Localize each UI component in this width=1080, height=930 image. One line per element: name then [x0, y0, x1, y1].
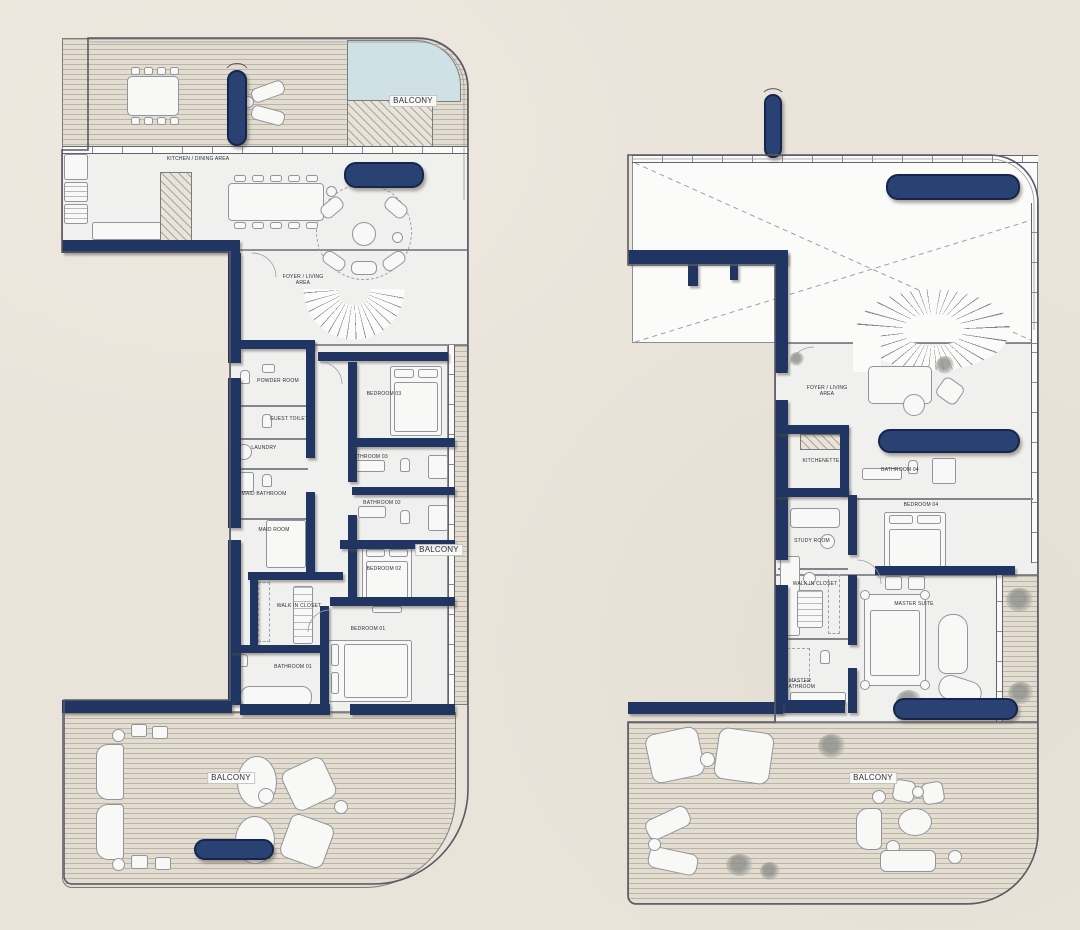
duvet — [870, 610, 920, 676]
window-wall-right — [448, 345, 455, 705]
dining-table — [228, 183, 324, 221]
entry-planter-upper — [764, 94, 782, 158]
wall — [848, 668, 857, 713]
chair — [252, 175, 264, 182]
toilet — [400, 458, 410, 472]
label-maid-room: MAID ROOM — [258, 527, 289, 533]
chair — [920, 780, 945, 805]
bench — [372, 606, 402, 613]
wall — [306, 340, 315, 458]
chair — [306, 175, 318, 182]
potted-plant — [936, 356, 954, 374]
label-kitchen-dining: KITCHEN / DINING AREA — [167, 156, 230, 162]
kitchen-island — [160, 172, 192, 242]
chair — [131, 67, 140, 75]
wall — [775, 425, 847, 434]
partition — [778, 638, 848, 640]
living-planter — [344, 162, 424, 188]
wall — [240, 704, 330, 715]
toilet — [400, 510, 410, 524]
partition — [232, 438, 308, 440]
label-foyer-living: FOYER / LIVING AREA — [282, 274, 324, 287]
wall — [228, 540, 241, 705]
foyer-planter — [878, 429, 1020, 453]
label-walk-in-closet-upper: WALK IN CLOSET — [793, 581, 838, 587]
bed-post — [920, 680, 930, 690]
side-table — [912, 786, 924, 798]
chair — [885, 576, 902, 590]
chair — [170, 117, 179, 125]
wall — [730, 264, 738, 280]
chair — [157, 67, 166, 75]
chair — [157, 117, 166, 125]
curved-staircase — [298, 289, 410, 343]
closet-island — [797, 590, 823, 628]
entry-arc — [764, 89, 782, 92]
chair — [131, 724, 147, 737]
toilet — [262, 474, 272, 487]
chair — [234, 175, 246, 182]
bed-post — [920, 590, 930, 600]
sofa-segment — [351, 261, 377, 275]
curved-lounger — [96, 804, 124, 860]
toilet — [820, 650, 830, 664]
wall — [62, 700, 232, 713]
label-bathroom-03: BATHROOM 03 — [350, 454, 388, 460]
window-wall-right — [1031, 203, 1038, 563]
wall — [250, 578, 258, 650]
label-walk-in-closet: WALK IN CLOSET — [277, 603, 322, 609]
pillow — [366, 549, 385, 557]
partition — [857, 498, 1033, 500]
label-guest-toilet: GUEST TOILET — [270, 416, 308, 422]
chair — [144, 117, 153, 125]
label-balcony-bottom: BALCONY — [207, 772, 255, 784]
label-bedroom-01: BEDROOM 01 — [351, 626, 386, 632]
label-maid-bathroom: MAID BATHROOM — [241, 491, 286, 497]
wall — [306, 492, 315, 572]
oval-table — [898, 808, 932, 836]
wall — [62, 240, 240, 253]
side-table — [334, 800, 348, 814]
wall — [350, 704, 455, 715]
label-balcony-right: BALCONY — [415, 544, 463, 556]
chair — [144, 67, 153, 75]
pillow — [331, 644, 339, 666]
entry-planter — [227, 70, 247, 146]
label-bathroom-02: BATHROOM 02 — [363, 500, 401, 506]
window-wall-top — [632, 155, 1038, 163]
label-foyer-living-upper: FOYER / LIVING AREA — [806, 385, 848, 398]
chair — [170, 67, 179, 75]
label-bedroom-04: BEDROOM 04 — [904, 502, 939, 508]
label-bathroom-04: BATHROOM 04 — [881, 467, 919, 473]
side-table — [112, 858, 125, 871]
vanity — [355, 460, 385, 472]
label-study-room: STUDY ROOM — [794, 538, 830, 544]
wall — [330, 597, 455, 606]
potted-plant — [790, 352, 804, 366]
label-bathroom-01: BATHROOM 01 — [274, 664, 312, 670]
wall — [775, 488, 849, 497]
chair — [288, 175, 300, 182]
bed-post — [860, 590, 870, 600]
chair — [306, 222, 318, 229]
wall — [320, 606, 329, 706]
chair — [131, 117, 140, 125]
wall — [688, 264, 698, 286]
wall — [848, 495, 857, 555]
coffee-table — [903, 394, 925, 416]
pillow — [418, 369, 438, 378]
outdoor-armchair — [713, 726, 776, 785]
kitchen-counter — [92, 222, 162, 240]
label-kitchenette: KITCHENETTE — [803, 458, 840, 464]
wall — [775, 253, 788, 373]
outdoor-dining-table — [127, 76, 179, 116]
wall — [628, 250, 788, 264]
shower — [428, 455, 448, 479]
void-planter — [886, 174, 1020, 200]
sink — [262, 364, 275, 373]
partition — [232, 468, 308, 470]
pillow — [917, 515, 941, 524]
plant — [818, 734, 846, 758]
duvet — [394, 382, 438, 432]
plant — [726, 854, 754, 876]
wall — [352, 487, 455, 495]
toilet — [240, 370, 250, 384]
partition — [232, 405, 308, 407]
label-balcony-top: BALCONY — [389, 95, 437, 107]
chair — [131, 855, 148, 869]
wall — [228, 378, 241, 528]
chair — [908, 576, 925, 590]
bed-post — [860, 680, 870, 690]
balcony-bench — [194, 839, 274, 860]
shower — [428, 505, 448, 531]
wall — [775, 700, 845, 713]
side-table — [700, 752, 715, 767]
label-balcony-bottom-upper: BALCONY — [849, 772, 897, 784]
outdoor-sofa — [880, 850, 936, 872]
label-master-bathroom: MASTER BATHROOM — [779, 678, 821, 691]
wall — [348, 515, 357, 600]
side-table — [258, 788, 274, 804]
chaise — [938, 614, 968, 674]
label-laundry: LAUNDRY — [251, 445, 276, 451]
shower — [932, 458, 956, 484]
vanity — [358, 506, 386, 518]
stove — [64, 182, 88, 202]
curved-lounger — [96, 744, 124, 800]
wall — [230, 645, 320, 653]
side-table — [112, 729, 125, 742]
wall — [348, 362, 357, 482]
wall — [840, 425, 849, 495]
chair — [234, 222, 246, 229]
wall — [240, 340, 314, 349]
duvet — [889, 529, 941, 567]
chair — [155, 857, 171, 870]
pillow — [331, 672, 339, 694]
side-table — [648, 838, 661, 851]
wall — [875, 566, 1015, 575]
window-wall-top — [62, 146, 468, 154]
floor-plans-canvas: BALCONY KITCHEN / DINING AREA FOYER / LI… — [0, 0, 1080, 930]
closet-island — [293, 586, 313, 644]
chair — [270, 222, 282, 229]
pouf — [326, 186, 337, 197]
label-master-suite: MASTER SUITE — [894, 601, 933, 607]
curved-sofa — [856, 808, 882, 850]
pillow — [889, 515, 913, 524]
wall — [248, 572, 343, 580]
wall — [628, 702, 783, 714]
wall — [775, 400, 788, 560]
wall — [352, 438, 455, 447]
plant — [1006, 588, 1034, 612]
hatched-deck — [347, 100, 433, 148]
plant — [760, 862, 780, 880]
chair — [152, 726, 168, 739]
side-table — [872, 790, 886, 804]
wardrobe — [258, 582, 270, 642]
oven — [64, 204, 88, 224]
chair — [270, 175, 282, 182]
wall — [775, 585, 788, 710]
label-bedroom-03: BEDROOM 03 — [367, 391, 402, 397]
study-sofa — [790, 508, 840, 528]
chair — [252, 222, 264, 229]
duvet — [344, 644, 408, 698]
label-bedroom-02: BEDROOM 02 — [367, 566, 402, 572]
pillow — [394, 369, 414, 378]
chair — [288, 222, 300, 229]
side-table — [948, 850, 962, 864]
wall — [318, 352, 448, 361]
wall — [848, 575, 857, 645]
pillow — [389, 549, 408, 557]
pouf — [392, 232, 403, 243]
coffee-table — [352, 222, 376, 246]
plunge-pool — [347, 40, 461, 102]
fridge — [64, 154, 88, 180]
label-powder-room: POWDER ROOM — [257, 378, 299, 384]
terrace-planter — [893, 698, 1018, 720]
kitchenette-counter — [800, 434, 844, 450]
